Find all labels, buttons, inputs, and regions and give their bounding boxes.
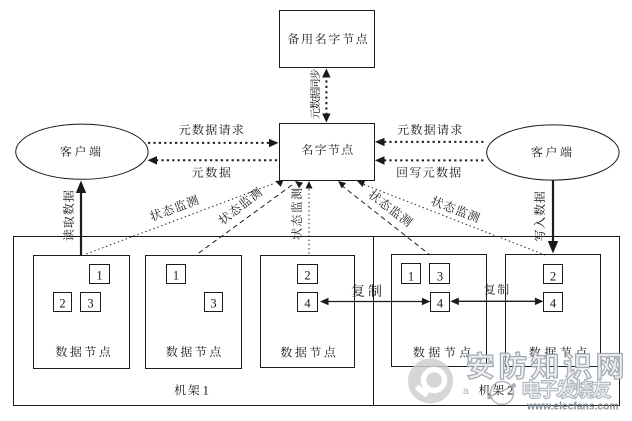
svg-text:2: 2 [59, 296, 65, 310]
svg-text:4: 4 [304, 296, 311, 310]
svg-text:www.elecfans.com: www.elecfans.com [526, 400, 618, 412]
svg-text:4: 4 [437, 297, 444, 311]
svg-text:2: 2 [550, 270, 556, 284]
svg-text:3: 3 [437, 270, 443, 284]
svg-text:1: 1 [173, 269, 179, 283]
svg-text:2: 2 [304, 269, 310, 283]
svg-text:1: 1 [96, 269, 102, 283]
svg-text:1: 1 [203, 383, 210, 398]
svg-text:3: 3 [87, 296, 93, 310]
svg-text:4: 4 [550, 296, 557, 310]
svg-text:3: 3 [210, 296, 216, 310]
svg-text:1: 1 [408, 270, 414, 284]
svg-text:a: a [463, 386, 469, 397]
